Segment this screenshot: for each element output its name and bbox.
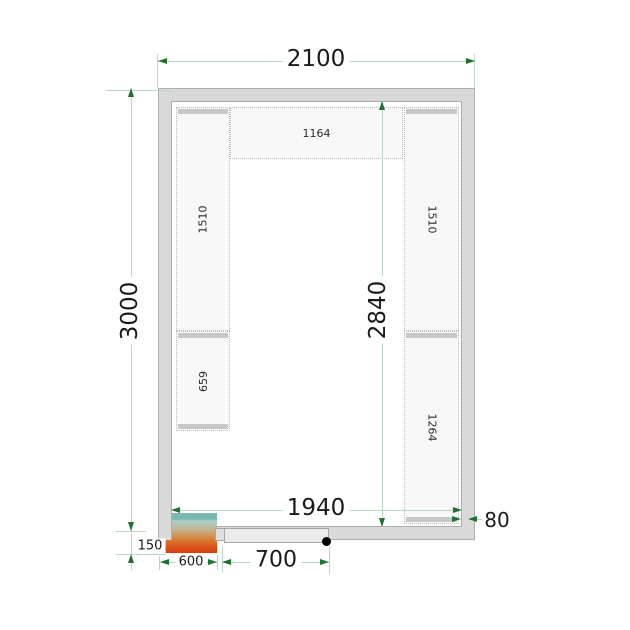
extension-line [106, 90, 171, 91]
dim-arrow [466, 58, 475, 64]
cold-room-floor-plan: 1510 659 1164 1510 1264 2100 3000 2840 1… [0, 0, 630, 630]
dim-line-unit-protrusion [131, 531, 132, 554]
dim-label-unit-width: 600 [176, 555, 207, 570]
extension-line [217, 555, 218, 570]
dim-arrow [128, 554, 134, 563]
door [224, 528, 329, 543]
shelf-end-bar [406, 109, 457, 114]
dim-arrow [379, 518, 385, 527]
dim-label-unit-protrusion: 150 [135, 539, 166, 554]
dim-arrow [320, 559, 329, 565]
dim-label-door-width: 700 [251, 548, 301, 571]
shelf-end-bar [178, 109, 228, 114]
dim-arrow [222, 559, 231, 565]
dim-label-outer-depth: 3000 [118, 278, 142, 345]
extension-line [329, 546, 330, 574]
shelf-right-lower-length-label: 1264 [425, 414, 438, 442]
shelf-end-bar [178, 424, 228, 429]
dim-arrow [468, 516, 477, 522]
door-hinge-dot [322, 537, 331, 546]
shelf-left-lower-length-label: 659 [197, 371, 210, 392]
dim-line-wall-thickness [443, 519, 452, 520]
shelf-right-upper-length-label: 1510 [425, 205, 438, 233]
dim-label-wall-thickness: 80 [482, 508, 511, 532]
dim-arrow [158, 58, 167, 64]
dim-arrow [379, 101, 385, 110]
shelf-end-bar [178, 333, 228, 338]
shelf-end-bar [406, 333, 457, 338]
shelf-left-upper-length-label: 1510 [197, 205, 210, 233]
dim-arrow [128, 88, 134, 97]
shelf-right-upper: 1510 [404, 107, 459, 331]
shelf-top: 1164 [230, 107, 403, 159]
dim-arrow [452, 516, 461, 522]
dim-line-unit-protrusion [131, 563, 132, 570]
shelf-top-length-label: 1164 [303, 127, 331, 140]
dim-label-inner-depth: 2840 [366, 277, 390, 344]
shelf-left-upper: 1510 [176, 107, 230, 331]
shelf-left-lower: 659 [176, 331, 230, 431]
dim-label-outer-width: 2100 [283, 47, 350, 71]
dim-arrow [160, 559, 169, 565]
shelf-right-lower: 1264 [404, 331, 459, 524]
wall-over-cooling-unit [158, 513, 172, 540]
dim-arrow [171, 507, 180, 513]
extension-line [116, 554, 166, 555]
dim-arrow [208, 559, 217, 565]
dim-arrow [453, 507, 462, 513]
dim-arrow [128, 522, 134, 531]
dim-label-inner-width: 1940 [283, 496, 350, 520]
